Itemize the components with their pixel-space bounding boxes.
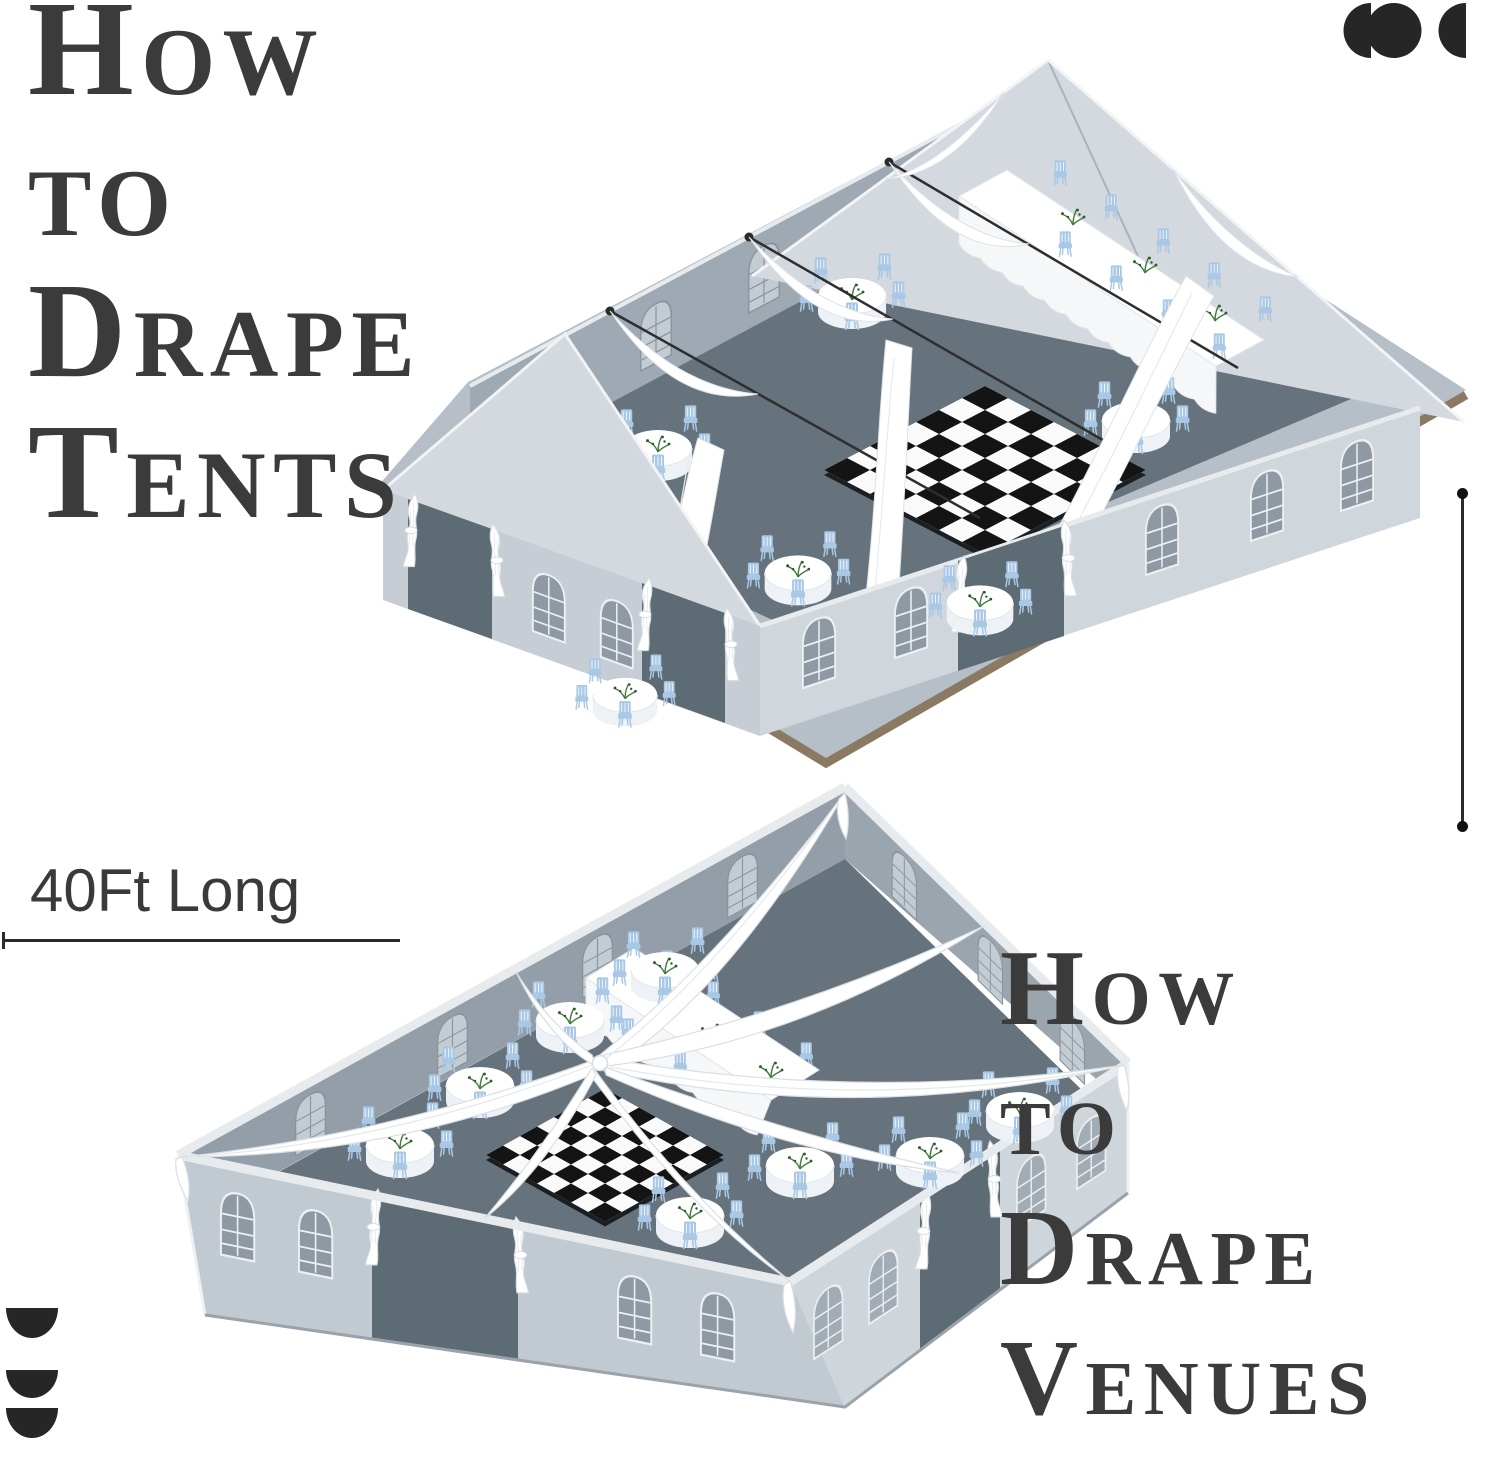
steps-icon: [4, 1306, 60, 1442]
title-line: How: [28, 0, 422, 120]
title-line: Drape: [28, 261, 422, 402]
title-line: to: [28, 120, 422, 261]
page: { "canvas": {"width": 1500, "height": 14…: [0, 0, 1500, 1469]
length-dimension-line: [2, 939, 400, 942]
length-dimension-label: 40Ft Long: [30, 858, 300, 924]
dimension-endpoint-dot: [1457, 488, 1468, 499]
title-line: How: [1000, 924, 1377, 1054]
brand-logo-icon: [1338, 2, 1470, 60]
title-line: Tents: [28, 402, 422, 543]
title-line: to: [1000, 1054, 1377, 1184]
tent-illustration-top: [380, 58, 1470, 768]
title-line: Venues: [1000, 1314, 1377, 1444]
height-dimension-line: [1461, 494, 1464, 826]
title-how-to-drape-venues: How to Drape Venues: [1000, 924, 1377, 1444]
title-line: Drape: [1000, 1184, 1377, 1314]
dimension-endpoint-dot: [1457, 821, 1468, 832]
title-how-to-drape-tents: How to Drape Tents: [28, 0, 422, 543]
drape-knot: [593, 1056, 608, 1071]
dimension-tick: [2, 932, 5, 949]
